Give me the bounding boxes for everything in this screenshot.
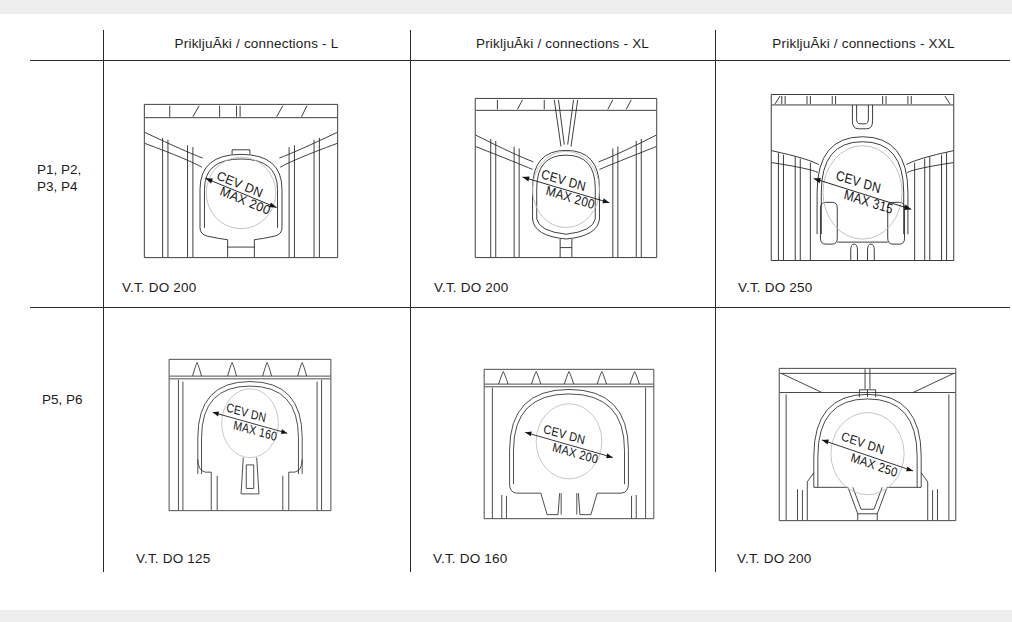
bottom-edge-bar	[0, 610, 1012, 622]
column-divider-3	[715, 30, 716, 572]
row-label-p5-p6: P5, P6	[42, 391, 83, 408]
top-edge-bar	[0, 0, 1012, 14]
column-divider-1	[103, 30, 104, 572]
arrowhead-right-icon	[606, 453, 613, 458]
row-label-line1: P5, P6	[42, 391, 83, 408]
technical-drawing-xl-p1p4: CEV DN MAX 200	[474, 97, 658, 259]
caption-vt-do: V.T. DO 200	[737, 551, 812, 566]
technical-drawing-xxl-p5p6: CEV DN MAX 250	[778, 367, 957, 522]
caption-vt-do: V.T. DO 250	[738, 280, 813, 295]
technical-drawing-l-p5p6: CEV DN MAX 160	[168, 358, 332, 512]
arrowhead-right-icon	[906, 466, 913, 471]
arrowhead-left-icon	[523, 176, 530, 181]
row-divider	[30, 307, 1010, 308]
arrowhead-right-icon	[602, 198, 609, 203]
caption-vt-do: V.T. DO 200	[434, 280, 509, 295]
row-label-line1: P1, P2,	[37, 161, 81, 178]
caption-vt-do: V.T. DO 125	[136, 551, 211, 566]
technical-drawing-xl-p5p6: CEV DN MAX 200	[483, 368, 655, 520]
row-label-line2: P3, P4	[37, 178, 81, 195]
arrowhead-left-icon	[213, 412, 219, 417]
technical-drawing-xxl-p1p4: CEV DN MAX 315	[770, 93, 955, 262]
arrowhead-right-icon	[281, 429, 287, 434]
technical-drawing-l-p1p4: CEV DN MAX 200	[143, 103, 339, 259]
arrowhead-left-icon	[822, 440, 829, 445]
arrowhead-left-icon	[205, 178, 213, 183]
row-label-p1-p4: P1, P2, P3, P4	[37, 161, 81, 195]
column-divider-2	[410, 30, 411, 572]
caption-vt-do: V.T. DO 200	[122, 280, 197, 295]
pipe-circle	[831, 413, 904, 495]
header-divider	[30, 60, 1010, 61]
catalog-page: { "table": { "col_headers": [ "PrikljuĀk…	[0, 0, 1012, 622]
caption-vt-do: V.T. DO 160	[433, 551, 508, 566]
column-header-connections-xxl: PrikljuĀki / connections - XXL	[715, 36, 1012, 51]
column-header-connections-l: PrikljuĀki / connections - L	[103, 36, 410, 51]
column-header-connections-xl: PrikljuĀki / connections - XL	[410, 36, 715, 51]
